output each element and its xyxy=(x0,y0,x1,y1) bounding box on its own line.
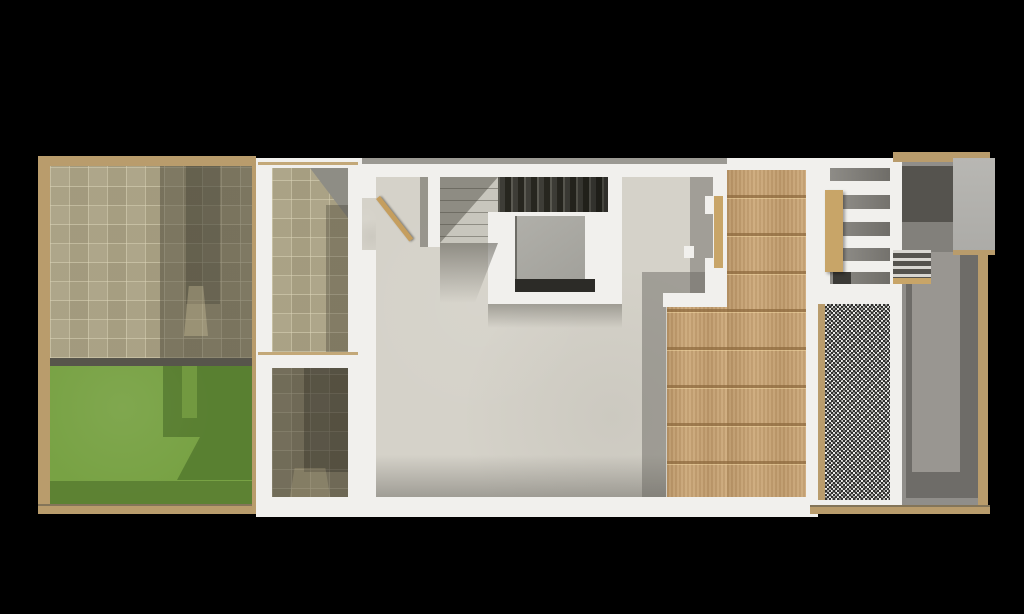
lawn-bottom-band xyxy=(50,481,256,504)
deck-plank-line xyxy=(667,309,806,312)
garden-fence-left xyxy=(38,156,50,514)
west-wall-lower xyxy=(362,250,376,497)
west-wall-upper xyxy=(362,164,376,198)
lawn-edge-strip xyxy=(50,358,256,366)
stair-dark-flight-shade xyxy=(548,177,608,214)
lightwell-mid-frame-edge xyxy=(258,352,358,355)
deck-plank-line xyxy=(667,385,806,388)
east-shadow-c xyxy=(642,295,666,497)
stair-wall-shadow xyxy=(420,177,428,247)
timber-steps xyxy=(893,250,931,280)
garden-fence-bottom xyxy=(38,504,256,514)
stair-side-wall xyxy=(428,177,440,247)
doorway-threshold xyxy=(362,198,376,250)
deck-plank-line xyxy=(667,423,806,426)
lawn-shadow-b xyxy=(200,366,256,480)
lawn-light-strip xyxy=(182,366,197,418)
lower-well-shade-core xyxy=(304,368,348,472)
gravel-east-border xyxy=(890,304,902,502)
rear-wood-fence xyxy=(978,255,988,505)
stair-void-dark-strip xyxy=(515,279,595,292)
wood-deck-extension xyxy=(667,307,727,505)
courtyard-dark-shadow xyxy=(902,166,953,224)
floorplan-render xyxy=(0,0,1024,614)
upper-well-shadow xyxy=(326,205,348,352)
courtyard-mid-shadow xyxy=(902,222,953,252)
stair-void-panel xyxy=(515,216,585,281)
wood-deck-main xyxy=(727,170,806,505)
sliding-door-wood-inset xyxy=(714,196,723,268)
deck-east-wall xyxy=(806,158,818,505)
stairwell-east-wall xyxy=(608,177,622,212)
north-wall xyxy=(362,164,727,177)
timber-steps-edge xyxy=(893,278,931,284)
stairwell-floor-shadow xyxy=(488,304,622,328)
floor-south-shadow xyxy=(376,455,666,497)
slat-gap-dark-patch xyxy=(833,272,851,284)
courtyard-fence-bottom xyxy=(810,505,990,514)
deck-plank-line xyxy=(727,233,806,236)
concrete-block-wood-edge xyxy=(953,250,995,255)
stair-handrail-plank xyxy=(825,190,843,272)
slat-gap xyxy=(830,168,890,181)
terrace-shadow-core xyxy=(186,166,220,304)
garden-fence-top xyxy=(38,156,256,166)
deck-plank-line xyxy=(727,195,806,198)
deck-north-wall xyxy=(727,158,818,170)
east-wall-tab-a xyxy=(705,196,714,214)
concrete-block xyxy=(953,158,995,252)
deck-plank-line xyxy=(667,347,806,350)
deck-plank-line xyxy=(727,271,806,274)
gravel-west-timber-edge xyxy=(818,304,825,504)
gravel-bed xyxy=(825,304,890,502)
deck-plank-line xyxy=(667,461,806,464)
lightwell-frame-top-edge xyxy=(258,162,358,165)
deck-partition-wall xyxy=(663,293,727,307)
east-shadow-b xyxy=(642,272,713,295)
east-wall-nub xyxy=(684,246,694,258)
south-wall xyxy=(256,497,818,517)
